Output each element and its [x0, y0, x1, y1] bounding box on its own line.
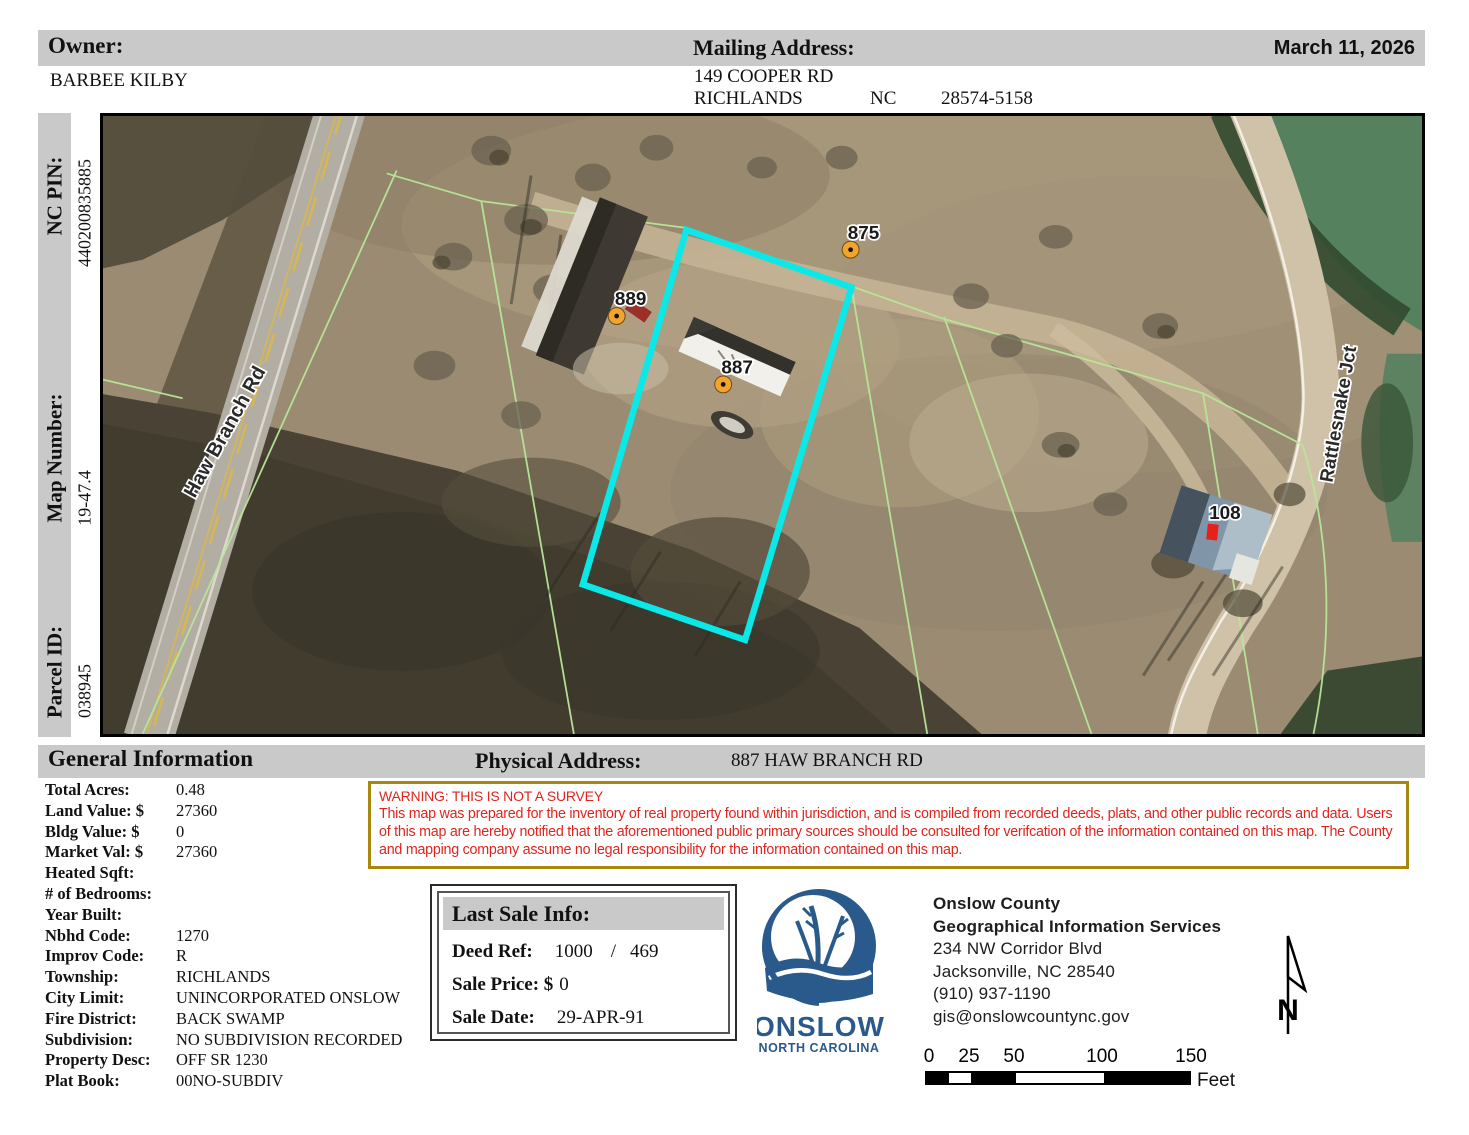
warning-title: WARNING: THIS IS NOT A SURVEY: [379, 787, 1398, 805]
sale-date-row: Sale Date:29-APR-91: [443, 1007, 724, 1029]
physical-address-value: 887 HAW BRANCH RD: [731, 750, 923, 772]
deed-ref-row: Deed Ref:1000/469: [443, 941, 724, 963]
agency-dept: Geographical Information Services: [933, 916, 1221, 939]
physical-address-label: Physical Address:: [475, 748, 641, 774]
info-row-fire-district: Fire District:BACK SWAMP: [45, 1009, 430, 1030]
agency-email: gis@onslowcountync.gov: [933, 1006, 1221, 1029]
mailing-city: RICHLANDS: [694, 88, 803, 110]
sale-price-row: Sale Price: $0: [443, 974, 724, 996]
logo-text: ONSLOW: [757, 1011, 885, 1042]
address-label-887: 887: [721, 357, 753, 378]
last-sale-title: Last Sale Info:: [443, 897, 724, 930]
north-letter: N: [1277, 994, 1299, 1027]
agency-name: Onslow County: [933, 893, 1221, 916]
scale-bar-segments: [925, 1071, 1191, 1085]
mailing-address-label: Mailing Address:: [693, 35, 855, 61]
agency-contact: Onslow County Geographical Information S…: [933, 893, 1221, 1028]
mailing-state: NC: [870, 88, 896, 110]
aerial-map-svg: 875 889 887 108 Haw Branch Rd Rattlesnak…: [103, 116, 1422, 734]
report-date: March 11, 2026: [1160, 37, 1415, 60]
info-row-city-limit: City Limit:UNINCORPORATED ONSLOW: [45, 988, 430, 1009]
logo-subtext: NORTH CAROLINA: [759, 1041, 880, 1055]
scale-tick-25: 25: [958, 1046, 979, 1068]
owner-label: Owner:: [48, 33, 123, 59]
agency-street: 234 NW Corridor Blvd: [933, 938, 1221, 961]
agency-phone: (910) 937-1190: [933, 983, 1221, 1006]
mailing-street: 149 COOPER RD: [694, 66, 833, 88]
scale-tick-50: 50: [1003, 1046, 1024, 1068]
scale-tick-0: 0: [924, 1046, 935, 1068]
address-label-889: 889: [615, 288, 647, 309]
scale-tick-100: 100: [1086, 1046, 1118, 1068]
north-arrow-svg: N: [1260, 930, 1320, 1045]
info-row-bedrooms: # of Bedrooms:: [45, 884, 430, 905]
scale-bar: 0 25 50 100 150 Feet: [925, 1046, 1265, 1092]
info-row-plat-book: Plat Book:00NO-SUBDIV: [45, 1071, 430, 1092]
north-arrow: N: [1260, 930, 1320, 1045]
scale-unit-label: Feet: [1197, 1070, 1235, 1092]
scale-tick-150: 150: [1175, 1046, 1207, 1068]
parcel-map-report: Owner: Mailing Address: March 11, 2026 B…: [0, 0, 1469, 1135]
marker-887: [715, 376, 732, 393]
info-row-township: Township:RICHLANDS: [45, 967, 430, 988]
info-row-nbhd-code: Nbhd Code:1270: [45, 926, 430, 947]
general-info-title: General Information: [48, 746, 253, 772]
info-row-property-desc: Property Desc:OFF SR 1230: [45, 1050, 430, 1071]
address-label-875: 875: [848, 222, 880, 243]
info-row-improv-code: Improv Code:R: [45, 946, 430, 967]
agency-city: Jacksonville, NC 28540: [933, 961, 1221, 984]
last-sale-box: Last Sale Info: Deed Ref:1000/469 Sale P…: [430, 884, 737, 1041]
logo-seal: [762, 889, 876, 1003]
aerial-map: 875 889 887 108 Haw Branch Rd Rattlesnak…: [100, 113, 1425, 737]
marker-108: [1206, 524, 1219, 541]
info-row-year-built: Year Built:: [45, 905, 430, 926]
warning-body: This map was prepared for the inventory …: [379, 805, 1398, 860]
onslow-logo-svg: ONSLOW NORTH CAROLINA: [757, 886, 887, 1068]
marker-889: [608, 308, 625, 325]
owner-value: BARBEE KILBY: [50, 70, 188, 92]
address-label-108: 108: [1209, 502, 1241, 523]
survey-warning-box: WARNING: THIS IS NOT A SURVEY This map w…: [368, 781, 1409, 869]
marker-875: [842, 241, 859, 258]
info-row-subdivision: Subdivision:NO SUBDIVISION RECORDED: [45, 1030, 430, 1051]
mailing-zip: 28574-5158: [941, 88, 1033, 110]
onslow-county-logo: ONSLOW NORTH CAROLINA: [757, 886, 887, 1068]
